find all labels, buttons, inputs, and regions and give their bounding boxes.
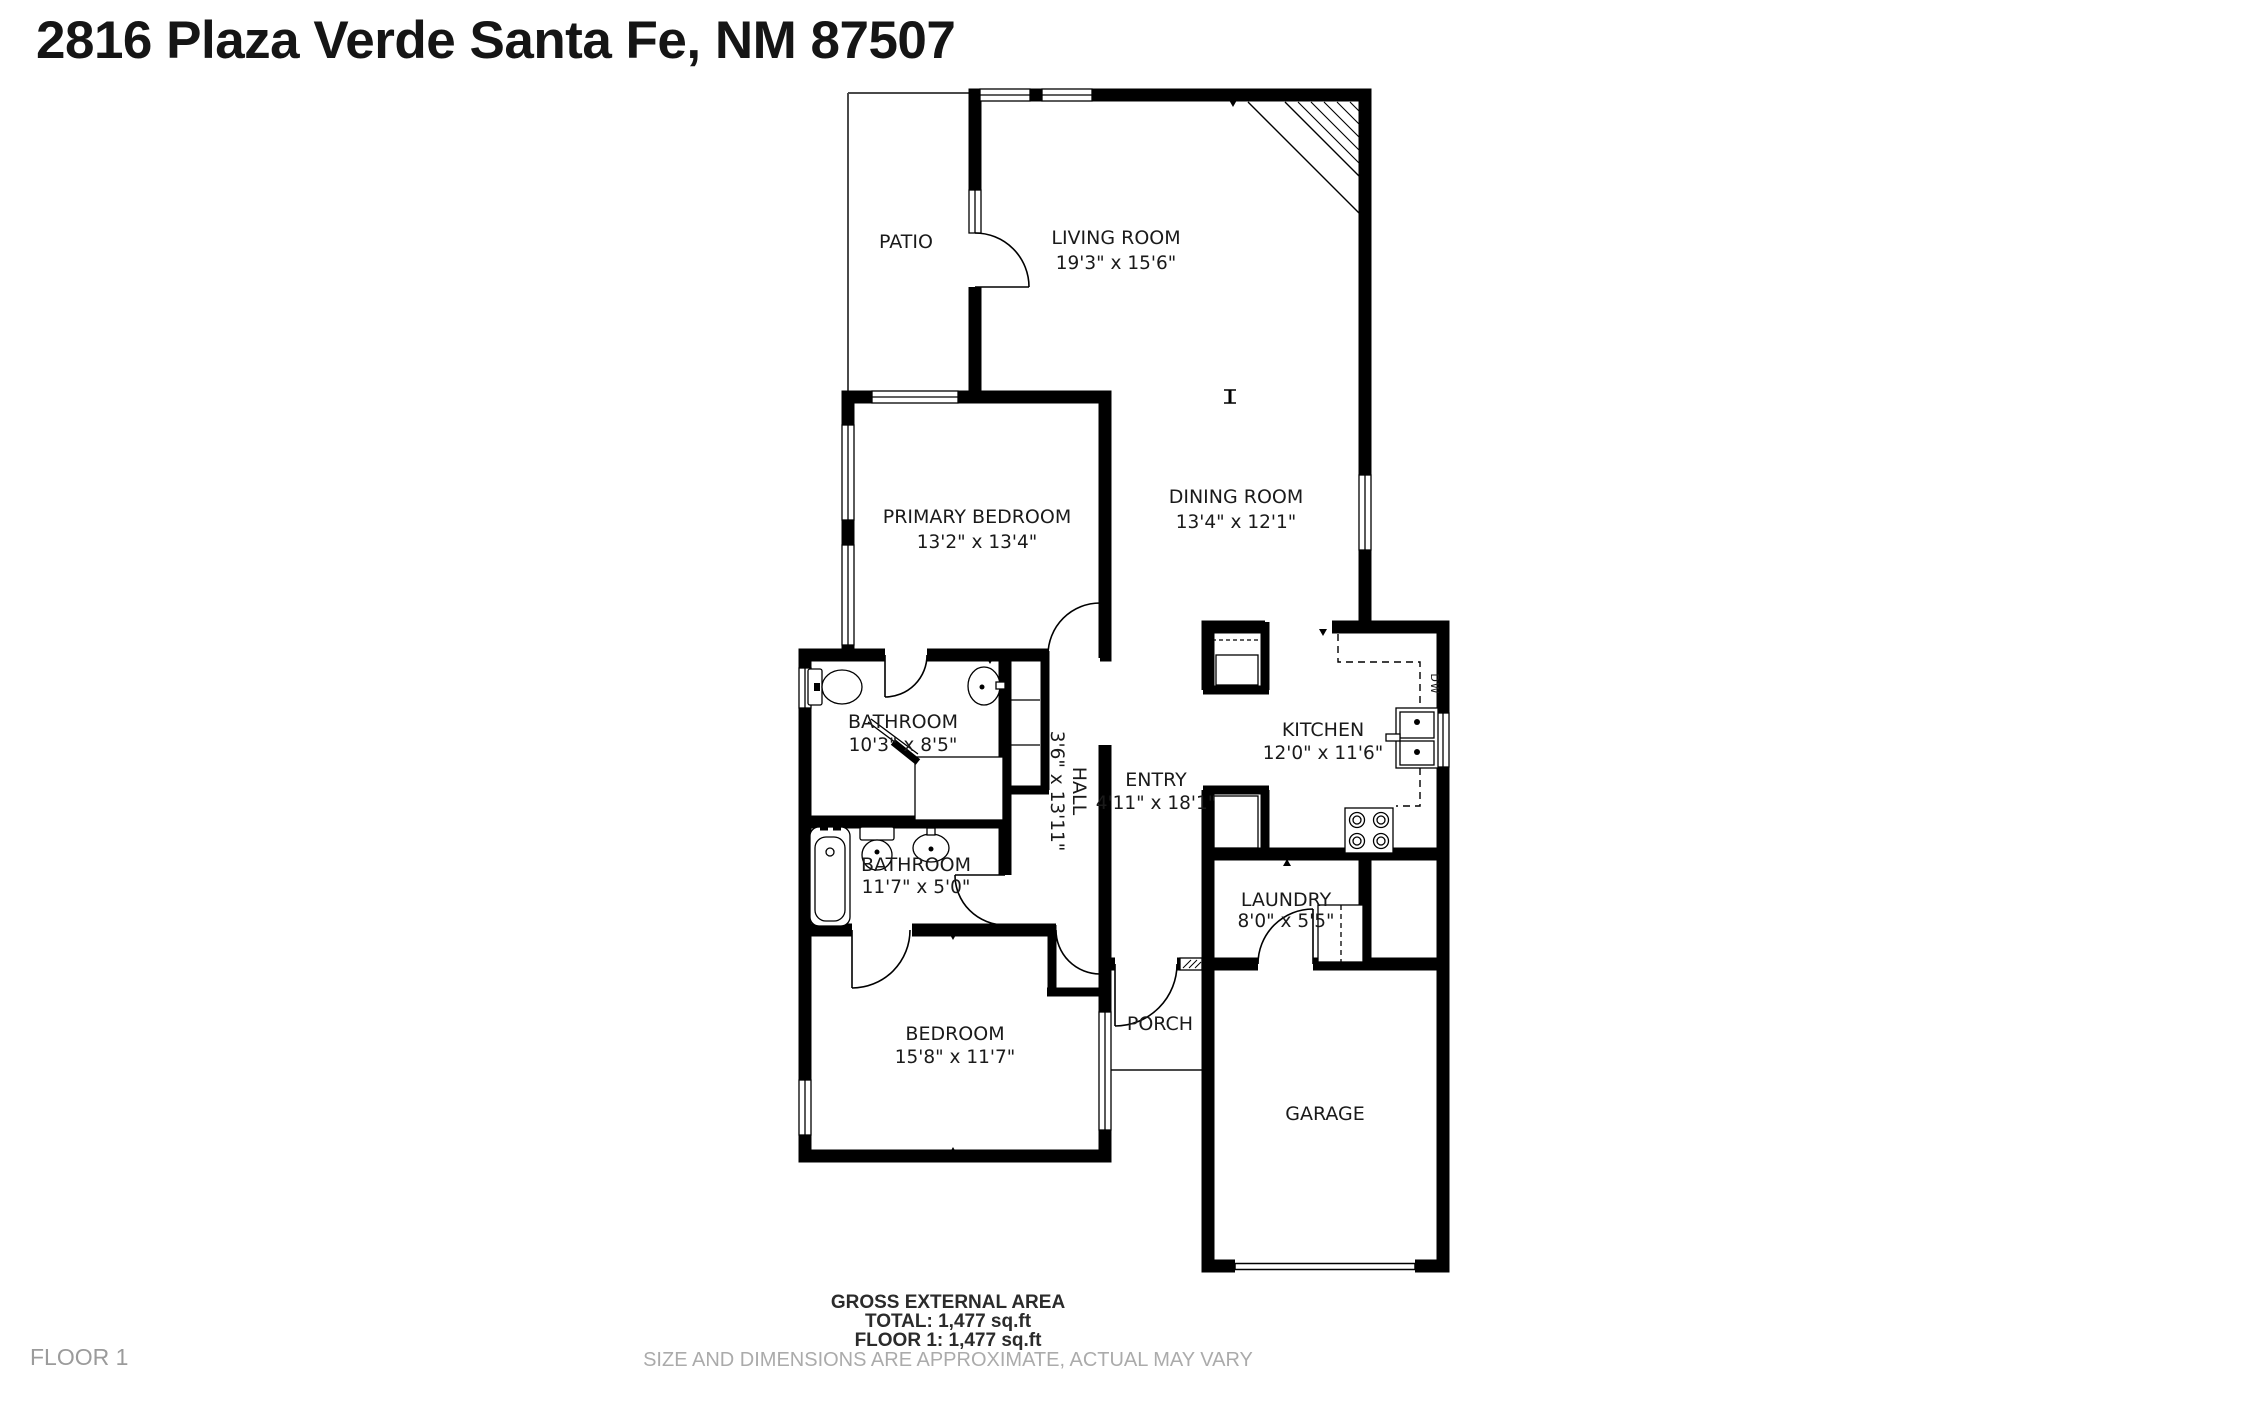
- room-label-entry: ENTRY: [1125, 769, 1187, 791]
- toilet-fixture-1: [808, 669, 862, 705]
- primary-west-window-2: [842, 545, 854, 645]
- garage-door: [1235, 1259, 1415, 1273]
- room-dims-entry: 4'11" x 18'1": [1096, 793, 1217, 814]
- floor-number-label: FLOOR 1: [30, 1344, 128, 1371]
- room-dims-primary-bedroom: 13'2" x 13'4": [917, 532, 1038, 553]
- room-label-bathroom-2: BATHROOM: [861, 854, 971, 876]
- fireplace-icon: [1248, 102, 1361, 215]
- living-window-1: [980, 89, 1030, 101]
- bathroom1-door: [885, 655, 927, 697]
- room-dims-bedroom: 15'8" x 11'7": [895, 1047, 1016, 1068]
- primary-top-window: [872, 391, 958, 403]
- bathtub-fixture: [810, 827, 850, 926]
- bedroom-porch-window: [1099, 1012, 1111, 1130]
- pantry-closet: [1212, 640, 1260, 685]
- room-dims-laundry: 8'0" x 5'5": [1238, 911, 1335, 932]
- hall-closet-door: [1056, 930, 1100, 974]
- room-dims-dining-room: 13'4" x 12'1": [1176, 512, 1297, 533]
- floorplan-page: 2816 Plaza Verde Santa Fe, NM 87507: [0, 0, 2245, 1402]
- dishwasher-label: DW: [1428, 673, 1441, 694]
- footer-area-summary: GROSS EXTERNAL AREA TOTAL: 1,477 sq.ft F…: [548, 1293, 1348, 1371]
- room-label-bathroom-1: BATHROOM: [848, 711, 958, 733]
- room-dims-bathroom-2: 11'7" x 5'0": [862, 877, 971, 898]
- entry-closet: [1214, 796, 1258, 848]
- kitchen-window: [1437, 713, 1449, 767]
- primary-bedroom-door: [1048, 603, 1100, 655]
- floor1-area-value: FLOOR 1: 1,477 sq.ft: [548, 1331, 1348, 1350]
- living-window-2: [1042, 89, 1092, 101]
- room-dims-living-room: 19'3" x 15'6": [1056, 253, 1177, 274]
- room-label-dining-room: DINING ROOM: [1169, 486, 1304, 508]
- room-label-kitchen: KITCHEN: [1282, 719, 1364, 741]
- size-disclaimer: SIZE AND DIMENSIONS ARE APPROXIMATE, ACT…: [548, 1350, 1348, 1371]
- room-label-porch: PORCH: [1127, 1013, 1193, 1035]
- room-dims-kitchen: 12'0" x 11'6": [1263, 743, 1384, 764]
- room-dims-hall: 3'6" x 13'11": [1046, 731, 1067, 852]
- room-label-patio: PATIO: [879, 231, 933, 253]
- room-label-hall: HALL: [1068, 767, 1090, 816]
- dining-window: [1359, 475, 1371, 550]
- gross-external-area-title: GROSS EXTERNAL AREA: [548, 1293, 1348, 1312]
- room-label-primary-bedroom: PRIMARY BEDROOM: [883, 506, 1071, 528]
- total-area-value: TOTAL: 1,477 sq.ft: [548, 1312, 1348, 1331]
- room-label-garage: GARAGE: [1285, 1103, 1365, 1125]
- front-door-sidelight: [1180, 958, 1202, 970]
- room-label-bedroom: BEDROOM: [905, 1023, 1004, 1045]
- room-labels: PATIO LIVING ROOM 19'3" x 15'6" DINING R…: [848, 227, 1441, 1125]
- linen-shelf-lines: [1010, 700, 1040, 745]
- stove-fixture: [1345, 808, 1393, 853]
- kitchen-s ink-fixture: [1386, 708, 1438, 768]
- patio-door-sidelight: [969, 190, 981, 233]
- floor-plan-drawing: PATIO LIVING ROOM 19'3" x 15'6" DINING R…: [0, 0, 2245, 1402]
- primary-west-window-1: [842, 425, 854, 520]
- bedroom-west-window: [799, 1080, 811, 1135]
- room-label-laundry: LAUNDRY: [1241, 889, 1332, 911]
- room-label-living-room: LIVING ROOM: [1051, 227, 1180, 249]
- bedroom-door: [852, 930, 910, 988]
- patio-door: [975, 233, 1029, 287]
- room-dims-bathroom-1: 10'3" x 8'5": [849, 735, 958, 756]
